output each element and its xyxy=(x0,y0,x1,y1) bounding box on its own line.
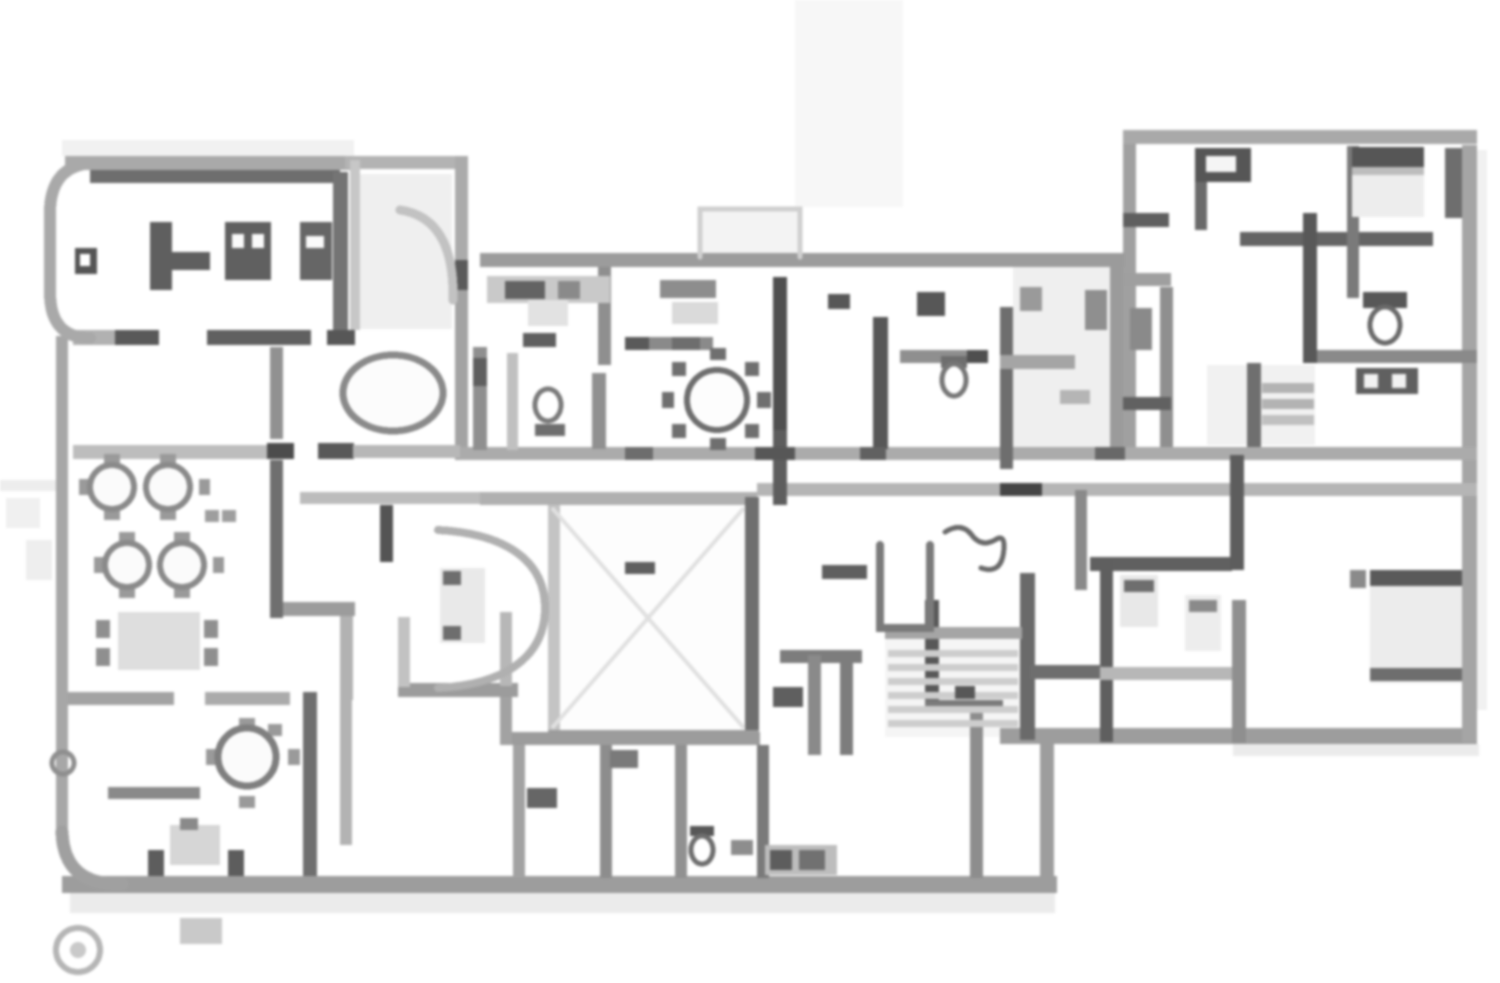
wall xyxy=(350,160,360,330)
wall xyxy=(303,692,317,877)
door-post xyxy=(267,443,294,459)
exterior-step xyxy=(0,480,58,491)
table-round xyxy=(218,728,276,786)
wall xyxy=(398,617,410,687)
bench xyxy=(180,918,222,944)
desk-inset xyxy=(80,254,90,266)
desk xyxy=(172,252,210,270)
wall xyxy=(115,330,159,345)
wall xyxy=(65,156,357,170)
wall xyxy=(745,497,759,745)
wall xyxy=(1123,273,1171,286)
chair xyxy=(96,620,110,638)
bed-headboard xyxy=(1352,147,1424,167)
table xyxy=(118,612,200,670)
toilet-tank xyxy=(535,424,565,436)
wall xyxy=(873,317,888,449)
exterior-haze xyxy=(795,0,903,207)
stair-tread xyxy=(888,720,1018,727)
wall xyxy=(1020,573,1035,740)
wall xyxy=(675,745,687,878)
fixture xyxy=(1000,355,1075,369)
chair xyxy=(204,648,218,666)
chair xyxy=(288,749,300,765)
bed-headboard xyxy=(1370,570,1462,586)
wall xyxy=(340,616,353,700)
wall xyxy=(1040,744,1054,876)
toilet-bowl xyxy=(1370,307,1400,343)
chair xyxy=(710,348,726,360)
nightstand xyxy=(1350,570,1366,588)
chair xyxy=(204,620,218,638)
shadow xyxy=(70,893,1055,913)
shelf xyxy=(1262,415,1314,425)
wall xyxy=(205,692,290,705)
shelf-inset xyxy=(306,236,324,248)
wall xyxy=(1123,397,1171,410)
door-post xyxy=(967,350,988,363)
chair xyxy=(222,510,236,522)
chair xyxy=(239,796,255,808)
fixture xyxy=(1060,390,1090,404)
toilet-bowl xyxy=(535,389,561,421)
wall xyxy=(62,876,1057,893)
door-post xyxy=(1000,483,1042,496)
wall xyxy=(1110,253,1123,459)
wall xyxy=(1160,287,1173,447)
appliance xyxy=(558,281,580,299)
shadow xyxy=(1477,150,1487,710)
floor-plan-canvas xyxy=(0,0,1500,983)
chair xyxy=(662,392,674,408)
exterior-step xyxy=(6,498,40,528)
stair-tread xyxy=(888,692,1018,699)
wall xyxy=(513,745,525,878)
shelf xyxy=(225,222,271,280)
appliance xyxy=(672,337,700,350)
appliance xyxy=(625,337,649,350)
shelf xyxy=(1262,383,1314,393)
wall xyxy=(840,660,853,755)
wall xyxy=(1075,490,1087,590)
toilet-bowl xyxy=(942,364,966,396)
wall xyxy=(460,447,1477,460)
chair xyxy=(710,438,726,450)
door-post xyxy=(860,447,886,460)
chair xyxy=(199,479,210,495)
appliance xyxy=(799,850,825,870)
toilet-bowl xyxy=(691,836,713,864)
shelf xyxy=(1262,399,1314,409)
wall xyxy=(1100,667,1232,680)
chair xyxy=(213,557,224,573)
wall xyxy=(340,700,352,845)
wall xyxy=(270,347,283,439)
fixture xyxy=(1130,308,1152,350)
wall xyxy=(90,170,340,183)
wall xyxy=(773,277,787,432)
bench xyxy=(108,787,200,799)
fixture xyxy=(625,562,655,574)
wall xyxy=(1317,350,1477,363)
fixture xyxy=(917,292,945,316)
vestibule-floor xyxy=(360,174,452,329)
fixture xyxy=(443,571,461,585)
stair-tread xyxy=(888,678,1018,685)
exterior-haze xyxy=(62,140,354,156)
fixture xyxy=(822,565,867,579)
wall xyxy=(300,492,482,504)
wall xyxy=(283,602,355,616)
wall xyxy=(333,172,348,330)
fixture xyxy=(527,788,557,808)
basin xyxy=(1364,374,1378,388)
wall xyxy=(507,353,518,450)
fixture xyxy=(610,750,638,768)
wall xyxy=(270,460,283,618)
wall xyxy=(1232,600,1246,743)
wall xyxy=(56,336,68,836)
door-post xyxy=(1095,447,1125,460)
door-post xyxy=(625,447,653,460)
wall xyxy=(62,692,174,705)
wall xyxy=(1230,455,1244,570)
door-post xyxy=(473,358,487,386)
wall xyxy=(592,373,606,449)
chair xyxy=(205,510,219,522)
wall xyxy=(808,655,821,755)
door-post xyxy=(755,447,795,460)
chair xyxy=(745,424,759,438)
chair xyxy=(228,850,244,876)
counter xyxy=(523,333,556,347)
shower xyxy=(880,545,930,628)
wall xyxy=(345,156,463,169)
wall xyxy=(455,156,468,268)
basin xyxy=(1392,374,1406,388)
chair xyxy=(180,818,198,830)
stair-tread xyxy=(888,664,1018,671)
wall xyxy=(1123,213,1169,227)
desk xyxy=(150,222,172,290)
wall xyxy=(773,430,787,505)
stair-tread xyxy=(888,706,1018,713)
bed-fold xyxy=(1352,167,1424,175)
door-post xyxy=(318,443,354,459)
fixture xyxy=(828,294,850,309)
appliance xyxy=(770,850,792,870)
planter-center xyxy=(70,942,86,958)
table-round xyxy=(146,465,190,509)
fixture xyxy=(528,300,568,326)
wall xyxy=(1123,144,1136,460)
fixture xyxy=(1085,290,1107,330)
stair-symbol xyxy=(945,527,1004,569)
wall xyxy=(327,330,355,345)
dresser-inset xyxy=(1206,156,1236,172)
shelf xyxy=(300,222,332,280)
wall xyxy=(1030,665,1102,679)
wall xyxy=(548,505,560,732)
wall xyxy=(1000,307,1013,469)
chair xyxy=(96,648,110,666)
wall xyxy=(480,492,757,505)
bed-foot xyxy=(1370,668,1462,681)
floor-plan-screenshot xyxy=(0,0,1500,983)
wall xyxy=(970,713,983,878)
stair-tread xyxy=(888,650,1018,657)
table-round xyxy=(90,465,134,509)
table-round xyxy=(160,543,204,587)
sink xyxy=(731,840,753,855)
wall xyxy=(353,445,460,458)
table xyxy=(170,825,220,865)
wall xyxy=(1195,182,1207,230)
chair xyxy=(148,850,164,876)
chair xyxy=(672,424,686,438)
wall xyxy=(1123,130,1477,144)
fixture xyxy=(1189,600,1217,612)
chair xyxy=(672,362,686,376)
shelf-inset xyxy=(252,234,264,248)
wall xyxy=(500,732,760,745)
chair xyxy=(745,362,759,376)
shadow xyxy=(1233,744,1479,756)
appliance xyxy=(505,281,545,299)
table-round xyxy=(105,543,149,587)
exterior-step xyxy=(26,540,52,580)
fixture xyxy=(773,687,803,707)
wall xyxy=(757,483,1477,496)
wardrobe xyxy=(1445,148,1462,218)
shelf-inset xyxy=(232,234,244,248)
entry-canopy xyxy=(700,207,800,257)
fixture xyxy=(1124,580,1154,592)
wall xyxy=(1303,213,1317,363)
wall xyxy=(1462,145,1477,742)
table xyxy=(672,302,718,324)
fixture xyxy=(443,626,461,640)
fixture xyxy=(1020,287,1042,311)
fixture xyxy=(955,686,975,699)
table-round xyxy=(687,370,747,430)
chair xyxy=(757,392,771,408)
wall xyxy=(500,697,512,745)
wall xyxy=(1100,560,1113,742)
table-oval xyxy=(343,355,443,431)
wall xyxy=(207,330,311,345)
cabinet xyxy=(660,280,716,298)
wall xyxy=(380,505,393,562)
wall xyxy=(1240,232,1433,246)
wall xyxy=(1247,363,1261,447)
